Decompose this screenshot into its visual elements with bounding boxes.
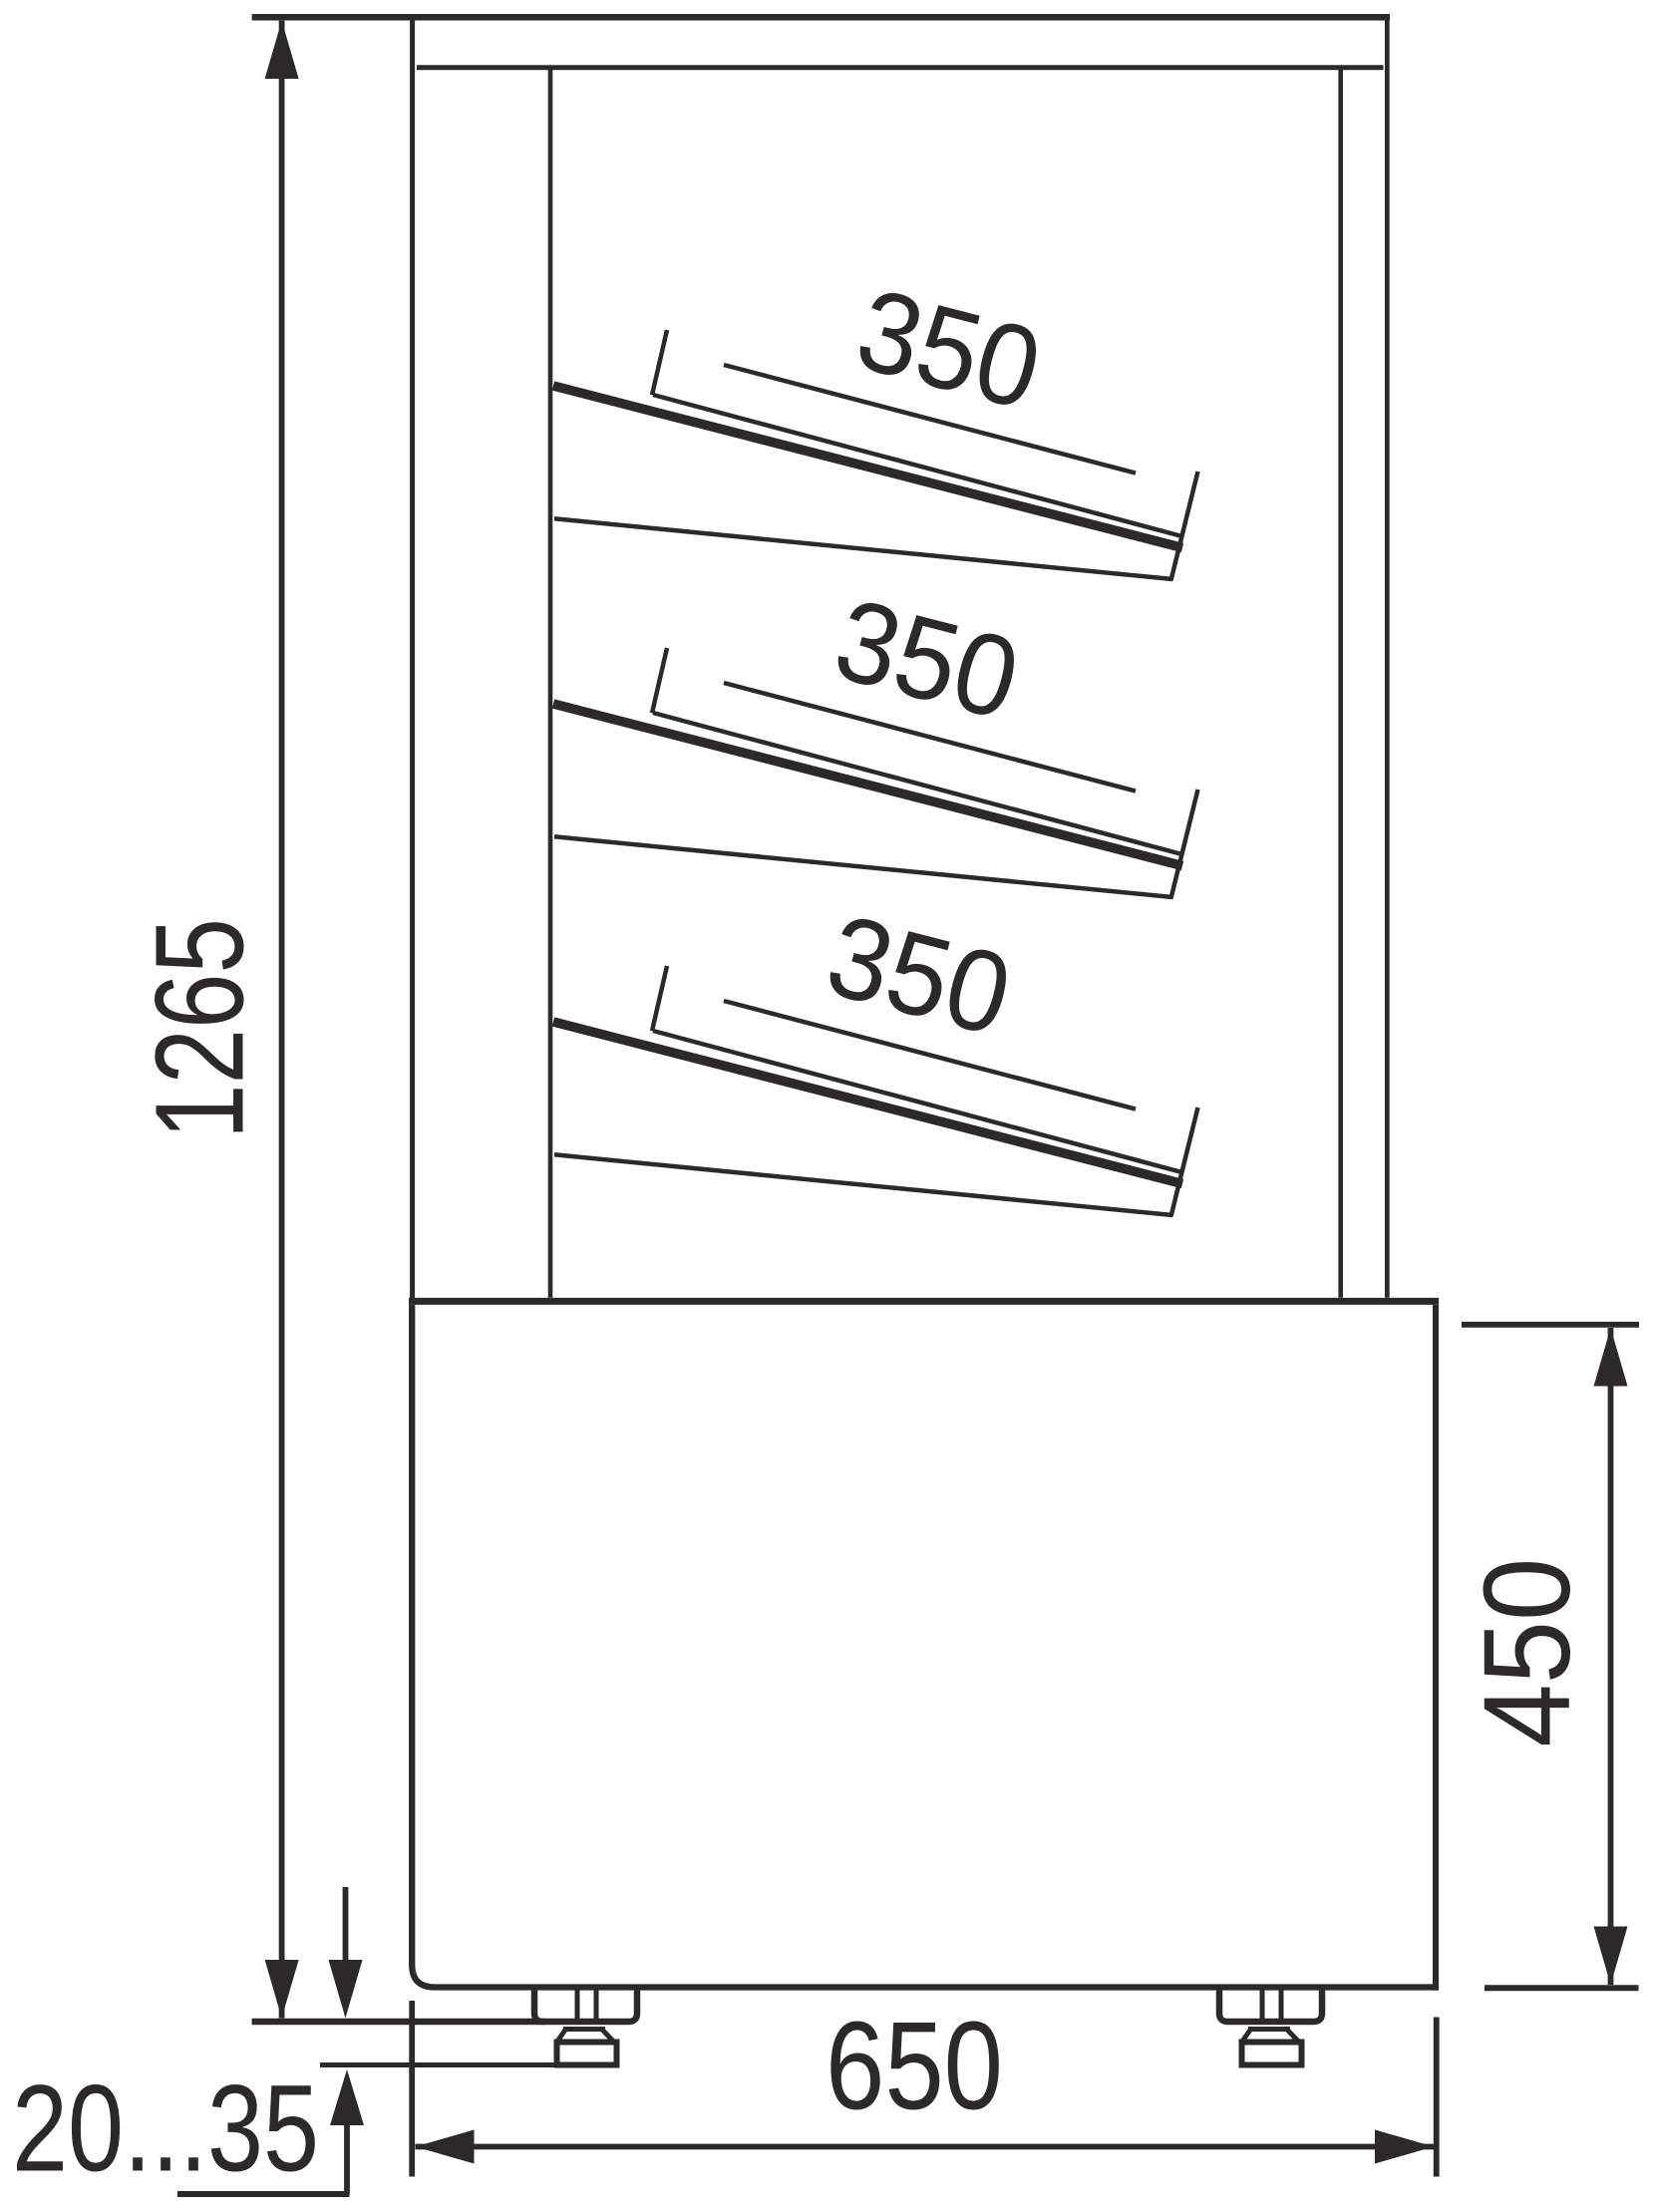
svg-text:650: 650 [826,1998,1003,2136]
svg-text:1265: 1265 [130,918,270,1139]
svg-text:20...35: 20...35 [12,2061,319,2198]
svg-text:450: 450 [1460,1558,1596,1747]
